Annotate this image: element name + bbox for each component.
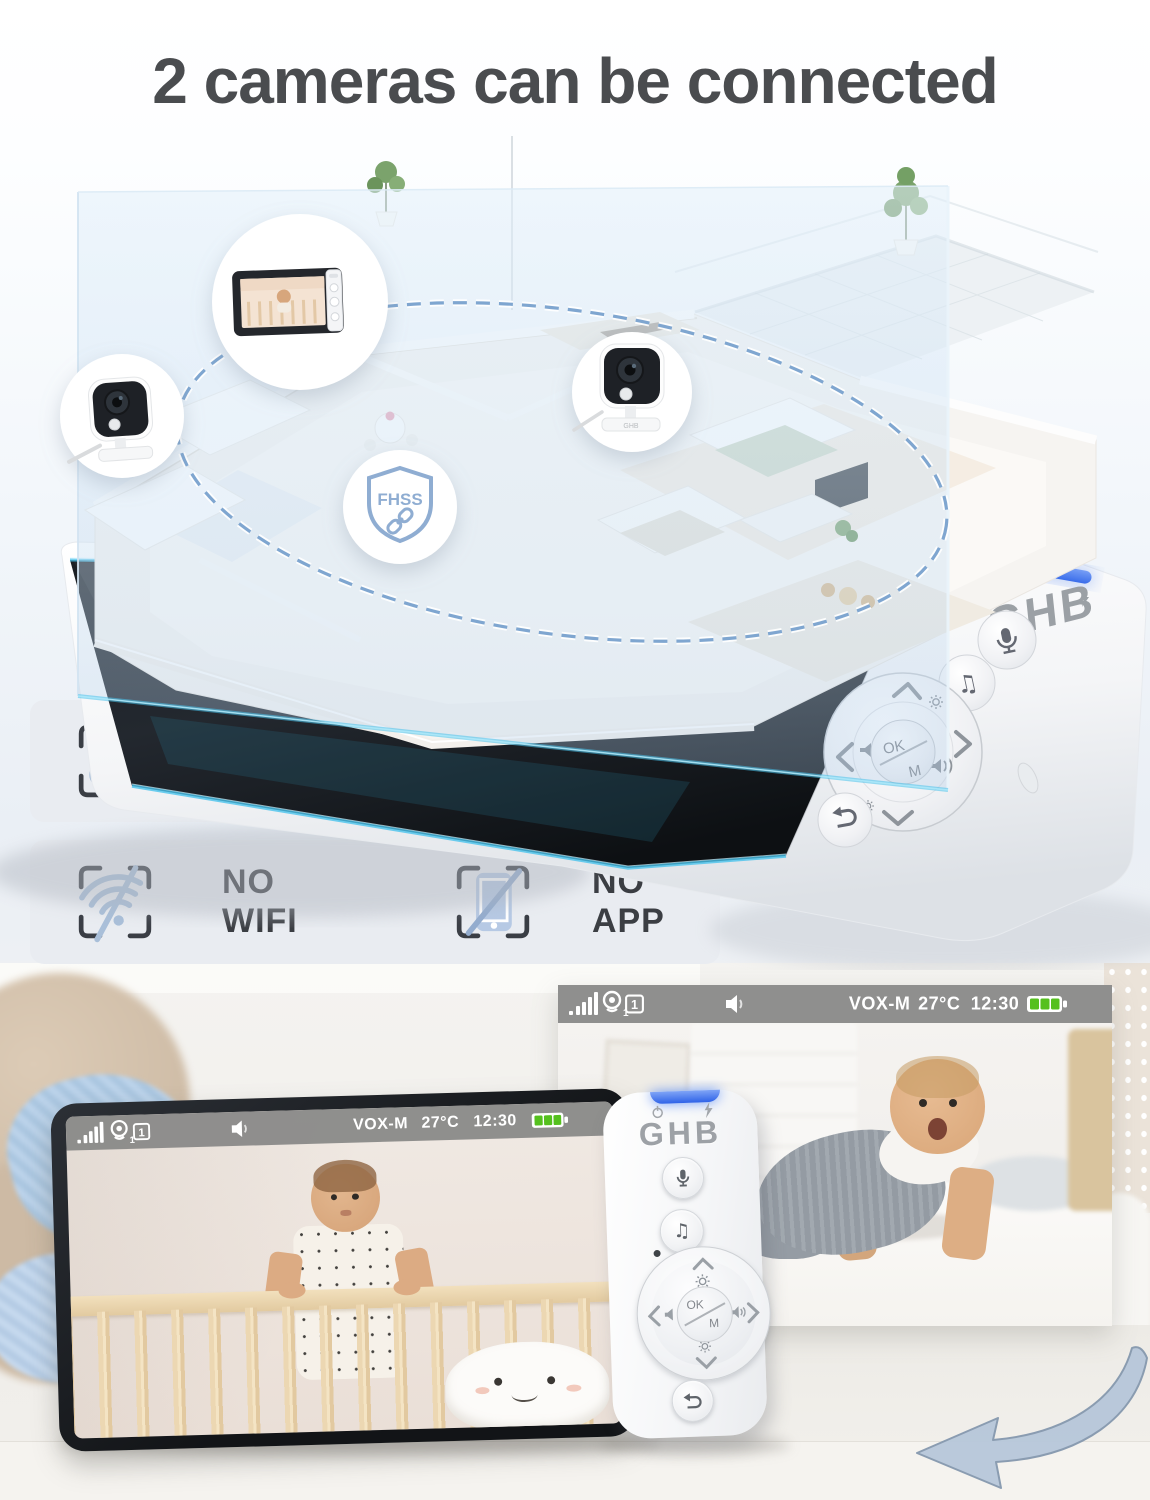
mini-monitor: [232, 268, 344, 337]
charging-bolt-icon: [1081, 590, 1089, 607]
mic-hole: [912, 683, 920, 691]
sage-blanket: [715, 425, 838, 477]
glow-edge: [70, 560, 912, 572]
signal-icon: [77, 1122, 109, 1145]
tv: [815, 462, 868, 516]
monitor-screen-left: 1 1 VOX-M 27°C 12:30: [50, 1088, 636, 1452]
temperature: 27°C: [421, 1114, 459, 1133]
back-arrow-icon: [682, 1392, 703, 1410]
signal-icon: [569, 992, 603, 1016]
baby-in-crib-scene: 1 1 VOX-M 27°C 12:30: [66, 1101, 622, 1438]
microphone-icon: [675, 1168, 692, 1189]
device-controls: GHB ♫: [818, 556, 1098, 847]
dpad-down-icon: [695, 1356, 717, 1370]
terrace: [695, 236, 1094, 378]
baby-camera: GHB: [574, 344, 664, 431]
battery-icon: [531, 1110, 570, 1130]
ok-label: OK: [686, 1297, 704, 1312]
dpad-right-icon: [746, 1301, 760, 1323]
signal-ellipse: [155, 258, 969, 687]
feature-row-no-wifi-no-app: NO WIFI NO APP: [30, 840, 720, 964]
camera-callout-right: GHB: [572, 332, 692, 452]
brand-logo-back: GHB: [985, 573, 1098, 652]
music-note-icon: ♫: [954, 668, 981, 700]
dpad: OK M: [824, 673, 982, 831]
link-icon: [386, 507, 414, 535]
hero-illustration: GHB ♫: [0, 0, 1150, 970]
kitchen: [540, 312, 700, 350]
vox-mode: VOX-M: [849, 994, 911, 1015]
back-button: [818, 793, 872, 847]
vox-mode: VOX-M: [353, 1115, 408, 1135]
sofa: [740, 494, 852, 542]
cloud-pillow: [444, 1340, 611, 1435]
back-arrow-icon: [831, 804, 856, 827]
talk-button: [661, 1156, 704, 1199]
temperature: 27°C: [918, 994, 960, 1015]
brightness-up-icon: [929, 695, 943, 709]
lullaby-button: [939, 655, 995, 711]
dpad: OK M: [634, 1244, 773, 1383]
clock: 12:30: [971, 994, 1020, 1015]
device-shadow: [710, 888, 1150, 970]
dining-table: [375, 413, 405, 443]
phone-off-icon: [446, 855, 540, 949]
shield-icon: [369, 468, 431, 541]
volume-icon: [930, 758, 951, 774]
dpad-right-icon: [956, 732, 970, 756]
menu-label: M: [709, 1316, 719, 1330]
talk-button: [978, 611, 1036, 669]
brightness-down-icon: [862, 800, 874, 812]
bed: [85, 465, 245, 550]
dpad-up-icon: [894, 684, 920, 698]
svg-text:1: 1: [138, 1127, 145, 1139]
baby-camera: [63, 376, 155, 464]
menu-label: M: [907, 762, 923, 781]
brand-logo-camera: GHB: [623, 423, 639, 430]
ok-button: [871, 720, 935, 784]
microphone-icon: [996, 626, 1019, 653]
mic-hole: [653, 1250, 660, 1257]
back-button: [671, 1379, 714, 1422]
feature-row-fhss: FHSS: [30, 700, 565, 822]
monitor-callout: [212, 214, 388, 390]
battery-icon: [1026, 994, 1068, 1015]
brand-logo-front: GHB: [603, 1112, 758, 1154]
feature-label-no-wifi: NO WIFI: [222, 863, 354, 941]
plant: [367, 161, 405, 226]
speaker-low-icon: [665, 1308, 675, 1320]
feature-label-fhss: FHSS: [222, 742, 317, 781]
clock: 12:30: [473, 1112, 517, 1131]
ok-label: OK: [882, 737, 907, 758]
dpad-down-icon: [884, 812, 912, 824]
flowers: [386, 412, 395, 421]
bed: [598, 486, 745, 553]
fhss-badge-label: FHSS: [377, 490, 422, 509]
dpad-left-icon: [838, 744, 852, 770]
balcony-table: [839, 587, 857, 605]
dpad-left-icon: [647, 1305, 661, 1327]
volume-icon: [732, 1306, 746, 1318]
bed: [690, 398, 855, 468]
floorplan-illustration: [85, 136, 1098, 744]
product-infographic: 2 cameras can be connected FHSS: [0, 0, 1150, 1500]
wifi-off-icon: [68, 855, 162, 949]
svg-text:1: 1: [631, 998, 638, 1012]
panel-shadow: [600, 1435, 790, 1455]
music-note-icon: ♫: [673, 1220, 691, 1243]
power-led: [1025, 560, 1092, 584]
baby-head: [890, 1059, 984, 1153]
basket: [1068, 1029, 1112, 1211]
ok-button: OK M: [676, 1285, 734, 1343]
usb-port: [1014, 760, 1042, 796]
dpad-up-icon: [692, 1257, 714, 1271]
link-icon: [68, 714, 162, 808]
plant: [884, 167, 928, 255]
monitor-control-panel: GHB ♫ OK: [602, 1088, 768, 1439]
channel-badge: 1: [624, 994, 645, 1015]
baby-arm: [940, 1166, 995, 1262]
speaker-low-icon: [860, 743, 871, 757]
feature-label-no-app: NO APP: [592, 863, 720, 941]
bed: [150, 380, 310, 455]
camera-callout-left: [60, 354, 184, 478]
fhss-shield-badge: FHSS: [343, 450, 457, 564]
apartment-slab: [95, 314, 1096, 744]
status-bar: 1 1 VOX-M 27°C 12:30: [558, 985, 1112, 1023]
curved-arrow: [795, 1330, 1150, 1500]
power-icon: [1018, 572, 1030, 586]
channel-badge: 1: [131, 1122, 151, 1142]
page-title: 2 cameras can be connected: [0, 44, 1150, 118]
speaker-icon: [230, 1119, 253, 1140]
speaker-icon: [724, 993, 748, 1015]
